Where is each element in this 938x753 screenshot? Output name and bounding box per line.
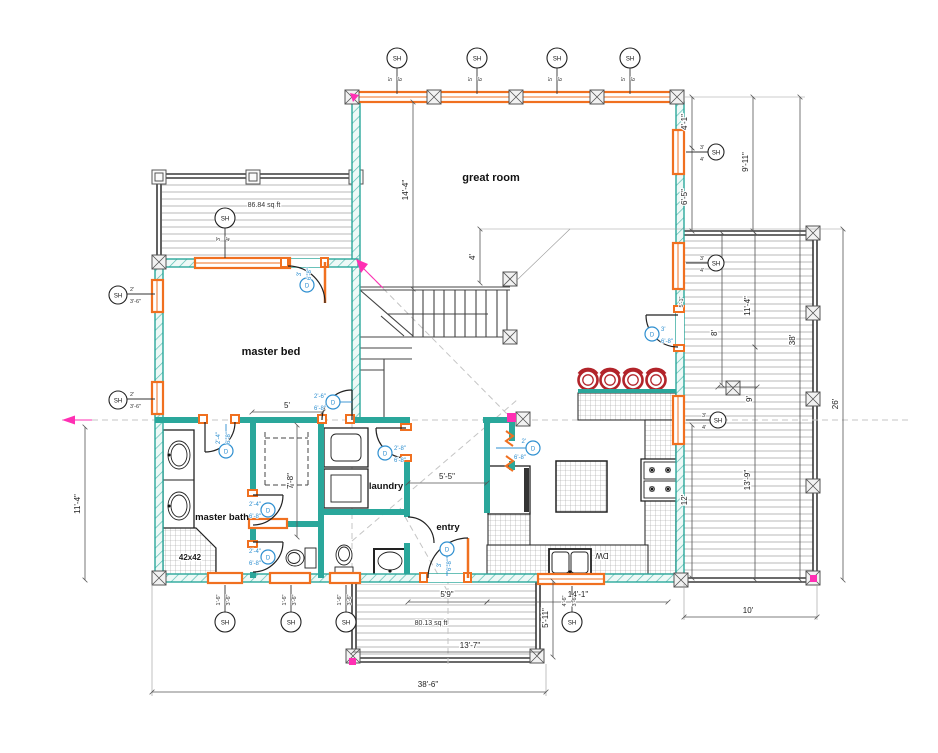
dim-deck-b: 9' xyxy=(745,396,754,402)
bar-stool xyxy=(647,369,666,389)
d-tag-toilet-2: D2'-4"6'-8" xyxy=(249,549,275,567)
svg-text:5': 5' xyxy=(621,77,627,81)
floor-plan-canvas: 86.84 sq ft 80.13 sq ft DW xyxy=(0,0,938,753)
svg-text:4': 4' xyxy=(226,237,232,241)
svg-text:2'-4": 2'-4" xyxy=(249,549,261,555)
kitchen-island xyxy=(556,461,607,512)
fridge xyxy=(488,466,530,514)
svg-text:6'-8": 6'-8" xyxy=(394,458,406,464)
svg-text:3'-6": 3'-6" xyxy=(226,594,232,605)
svg-text:1'-6": 1'-6" xyxy=(337,594,343,605)
svg-text:SH: SH xyxy=(473,57,481,63)
toilet xyxy=(335,545,353,576)
svg-text:2'-6": 2'-6" xyxy=(314,394,326,400)
d-tag-bed-hall: D2'-6"6'-8" xyxy=(314,394,352,412)
svg-text:6'-8": 6'-8" xyxy=(249,514,261,520)
svg-text:D: D xyxy=(266,556,271,562)
dishwasher-label: DW xyxy=(595,551,609,560)
d-tag-entry: D3'6'-8" xyxy=(437,542,454,576)
svg-text:6'-8": 6'-8" xyxy=(249,561,261,567)
d-tag-great-room-deck: D3'6'-8" xyxy=(645,327,673,345)
svg-text:6'-8": 6'-8" xyxy=(514,455,526,461)
dim-right-total: 38' xyxy=(788,334,797,345)
bar-stool xyxy=(601,369,620,389)
dim-lower-deck-height: 5'-11" xyxy=(541,608,550,628)
svg-text:D: D xyxy=(531,447,536,453)
svg-text:6': 6' xyxy=(558,77,564,81)
svg-text:3': 3' xyxy=(700,145,704,151)
sh-tag-top-3: SH5'6' xyxy=(547,48,567,94)
svg-text:3': 3' xyxy=(700,256,704,262)
svg-text:6'-8": 6'-8" xyxy=(661,339,673,345)
d-tag-kitchen-opening: D2'6'-8" xyxy=(496,439,540,461)
svg-text:SH: SH xyxy=(221,217,229,223)
svg-text:2': 2' xyxy=(130,287,134,293)
label-laundry: laundry xyxy=(369,481,404,492)
svg-text:6'-8": 6'-8" xyxy=(226,432,232,444)
dim-closet-depth: 7'-8" xyxy=(286,473,295,489)
sh-tag-top-1: SH5'6' xyxy=(387,48,407,94)
svg-text:1'-6": 1'-6" xyxy=(282,594,288,605)
stairs xyxy=(358,272,517,417)
svg-text:3'-6": 3'-6" xyxy=(130,299,141,305)
svg-text:SH: SH xyxy=(568,621,576,627)
lower-deck-area-label: 80.13 sq ft xyxy=(415,620,448,627)
svg-text:2'-8": 2'-8" xyxy=(394,446,406,452)
sh-tag-left-2: SH2'3'-6" xyxy=(109,391,155,410)
dim-bath-height: 11'-4" xyxy=(73,494,82,514)
svg-text:2': 2' xyxy=(130,392,134,398)
svg-text:1'-6": 1'-6" xyxy=(216,594,222,605)
dim-right-b: 6'-5" xyxy=(680,189,689,205)
svg-text:SH: SH xyxy=(114,294,122,300)
dim-deck-c: 12' xyxy=(680,494,689,505)
dim-deck-a: 8' xyxy=(710,330,719,336)
sh-tag-bottom-1: SH1'-6"3'-6" xyxy=(215,585,235,632)
svg-text:SH: SH xyxy=(287,621,295,627)
label-master-bath: master bath xyxy=(195,512,249,523)
svg-text:SH: SH xyxy=(393,57,401,63)
upper-deck-area-label: 86.84 sq ft xyxy=(248,202,281,209)
dim-kitchen-bottom: 14'-1" xyxy=(568,590,589,599)
powder-door xyxy=(408,517,434,543)
floor-plan-drawing: 86.84 sq ft 80.13 sq ft DW xyxy=(0,0,938,753)
dim-deck-upper: 11'-4" xyxy=(743,296,752,316)
svg-text:4': 4' xyxy=(702,425,706,431)
svg-text:5': 5' xyxy=(548,77,554,81)
label-great-room: great room xyxy=(462,172,520,184)
d-tag-bath-entry: D2'-4"6'-8" xyxy=(216,424,233,458)
dim-porch: 9'-11" xyxy=(741,152,750,172)
svg-text:SH: SH xyxy=(712,262,720,268)
svg-text:SH: SH xyxy=(342,621,350,627)
sh-tag-top-2: SH5'6' xyxy=(467,48,487,94)
cased-opening xyxy=(249,519,287,528)
upper-left-deck: 86.84 sq ft xyxy=(152,170,363,263)
svg-text:6': 6' xyxy=(398,77,404,81)
svg-text:5': 5' xyxy=(468,77,474,81)
sh-tag-top-4: SH5'6' xyxy=(620,48,640,94)
dim-deck-small: 5'-1" xyxy=(679,296,685,307)
svg-text:3': 3' xyxy=(661,327,665,333)
d-tag-toilet-1: D2'-4"6'-8" xyxy=(249,502,275,520)
svg-text:6'-8": 6'-8" xyxy=(307,268,313,280)
svg-text:2': 2' xyxy=(522,439,526,445)
svg-text:2'-4": 2'-4" xyxy=(249,502,261,508)
dim-entry-width: 5'-5" xyxy=(439,472,455,481)
svg-text:D: D xyxy=(266,509,271,515)
washer-dryer xyxy=(324,428,368,508)
dim-house-width: 38'-6" xyxy=(418,680,439,689)
label-master-bed: master bed xyxy=(242,346,301,358)
svg-text:3'-6": 3'-6" xyxy=(130,404,141,410)
dim-lower-deck-width: 13'-7" xyxy=(460,641,481,650)
svg-text:6': 6' xyxy=(631,77,637,81)
svg-text:4'-6": 4'-6" xyxy=(562,595,568,606)
svg-text:D: D xyxy=(650,333,655,339)
svg-text:6': 6' xyxy=(478,77,484,81)
svg-text:3': 3' xyxy=(702,413,706,419)
svg-text:D: D xyxy=(445,548,450,554)
svg-text:5': 5' xyxy=(388,77,394,81)
svg-text:SH: SH xyxy=(714,419,722,425)
svg-text:D: D xyxy=(383,452,388,458)
svg-text:4': 4' xyxy=(700,157,704,163)
svg-text:SH: SH xyxy=(553,57,561,63)
svg-text:4': 4' xyxy=(700,268,704,274)
svg-text:3': 3' xyxy=(437,563,443,567)
powder-sink xyxy=(374,549,406,576)
svg-text:SH: SH xyxy=(712,151,720,157)
shower: 42x42 xyxy=(163,528,216,576)
dim-deck-total: 26' xyxy=(831,398,840,409)
svg-text:6'-8": 6'-8" xyxy=(314,406,326,412)
svg-text:3'-6": 3'-6" xyxy=(347,594,353,605)
dim-right-a: 4'-1" xyxy=(680,114,689,130)
svg-text:D: D xyxy=(305,284,310,290)
svg-text:SH: SH xyxy=(221,621,229,627)
master-bath-fixtures: 42x42 xyxy=(163,428,406,576)
sh-tag-bottom-2: SH1'-6"3'-6" xyxy=(281,585,301,632)
shower-size-label: 42x42 xyxy=(179,553,202,562)
dim-landing: 4' xyxy=(468,254,477,260)
sh-tag-bottom-3: SH1'-6"3'-6" xyxy=(336,585,356,632)
bar-stool xyxy=(579,369,598,389)
dim-great-room: 14'-4" xyxy=(401,180,410,201)
dim-deck-lower: 13'-9" xyxy=(743,470,752,491)
dim-deck-width: 10' xyxy=(743,606,754,615)
label-entry: entry xyxy=(436,522,460,533)
svg-text:3'-6": 3'-6" xyxy=(572,595,578,606)
toilet xyxy=(286,548,316,568)
sh-tag-left-1: SH2'3'-6" xyxy=(109,286,155,305)
range xyxy=(641,459,679,501)
right-deck xyxy=(680,226,820,585)
svg-text:D: D xyxy=(331,401,336,407)
svg-text:3': 3' xyxy=(297,272,303,276)
kitchen-sink xyxy=(549,549,591,577)
svg-text:3': 3' xyxy=(216,237,222,241)
svg-text:SH: SH xyxy=(114,399,122,405)
svg-text:3'-6": 3'-6" xyxy=(292,594,298,605)
svg-text:D: D xyxy=(224,450,229,456)
svg-text:2'-4": 2'-4" xyxy=(216,432,222,444)
svg-text:SH: SH xyxy=(626,57,634,63)
dim-closet-width: 5' xyxy=(284,401,290,410)
bar-stool xyxy=(624,369,643,389)
dim-entry-bottom: 5'9" xyxy=(440,590,453,599)
svg-text:6'-8": 6'-8" xyxy=(447,559,453,571)
